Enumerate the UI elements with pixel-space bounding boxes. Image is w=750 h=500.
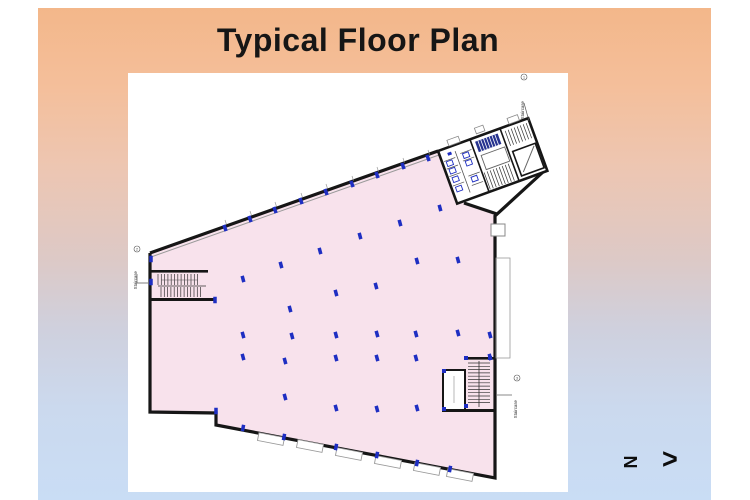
wall-door-detail <box>491 224 505 236</box>
staircase-2-label: 2 Staircase <box>133 246 148 289</box>
dimension-bracket <box>496 258 510 358</box>
north-arrow-icon: > <box>662 443 678 476</box>
staircase-1-label: 1 Staircase <box>520 74 529 121</box>
grid-tick <box>275 202 277 207</box>
floorplan-drawing: 2 Staircase 3 Sta <box>128 73 568 492</box>
floorplan-panel: 2 Staircase 3 Sta <box>128 73 568 492</box>
service-core <box>435 110 547 204</box>
grid-tick <box>250 211 252 216</box>
grid-tick <box>225 220 227 225</box>
north-letter: N <box>620 452 640 472</box>
staircase-2-number: 2 <box>136 247 138 251</box>
staircase-3-label: 3 Staircase <box>497 375 520 418</box>
column-marker <box>149 256 153 263</box>
slide: Typical Floor Plan <box>0 0 750 500</box>
staircase-3-number: 3 <box>516 376 518 380</box>
staircase-1-number: 1 <box>523 75 525 79</box>
floor-area <box>150 151 497 478</box>
column-marker <box>214 408 218 415</box>
grid-tick <box>326 184 328 189</box>
grid-tick <box>301 193 303 198</box>
staircase-3-text: Staircase <box>513 399 518 418</box>
column-marker <box>213 297 217 304</box>
column-marker <box>149 279 153 286</box>
page-title: Typical Floor Plan <box>38 22 678 59</box>
